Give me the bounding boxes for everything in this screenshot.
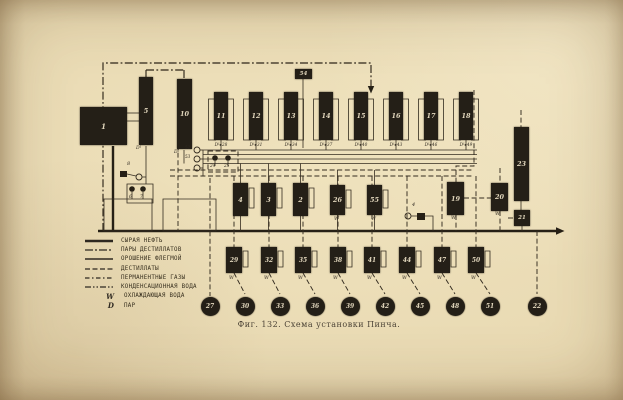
vessel-55: 55: [367, 185, 382, 215]
pipe-line: [346, 190, 351, 208]
pipe-line: [120, 171, 127, 177]
tower-drain-label: D¹▸37: [309, 144, 343, 148]
steam-mark: D¹: [174, 151, 179, 156]
device-4-label: 4: [412, 203, 415, 208]
cooling-water-mark: W: [334, 218, 339, 223]
distillation-tower: 11: [214, 92, 228, 140]
device-6-label: 6: [129, 195, 132, 199]
scanned-book-page: 1 5 10 D¹ D¹ 54 23 19 20 21 W W 4 3 2 26…: [0, 0, 623, 400]
receiver-tank: 33: [271, 297, 290, 316]
distillation-tower: 17: [424, 92, 438, 140]
furnace-number: 1: [101, 122, 106, 131]
cooling-water-mark: W: [367, 277, 372, 282]
cooling-water-mark: W: [298, 277, 303, 282]
device-symbol: [194, 156, 200, 162]
tower-drain-label: D¹▸31: [239, 144, 273, 148]
vessel-number: 23: [517, 160, 526, 168]
legend-line-sample: [84, 274, 114, 282]
device-25-label: 25: [224, 164, 229, 168]
tower-10: 10: [177, 79, 192, 149]
furnace: 1: [80, 107, 127, 145]
pipe-line: [269, 273, 280, 294]
pipe-line: [381, 251, 386, 267]
device-24-label: 24: [210, 164, 215, 168]
legend-line-icon: [84, 246, 114, 254]
cooling-water-mark: W: [333, 277, 338, 282]
receiver-tank: 51: [481, 297, 500, 316]
legend-label: ОРОШЕНИЕ ФЛЕГМОЙ: [121, 256, 182, 262]
box-19: 19: [447, 182, 464, 215]
vessel-number: 2: [298, 196, 303, 204]
condenser-box: 32: [261, 247, 277, 273]
legend-label: ПЕРМАНЕНТНЫЕ ГАЗЫ: [121, 275, 185, 281]
device-7-label: 7: [140, 195, 143, 199]
legend-line-sample: D: [84, 302, 117, 310]
vessel-2: 2: [293, 183, 308, 216]
pipe-line: [485, 251, 490, 267]
vessel-number: 3: [266, 196, 271, 204]
condenser-box: 29: [226, 247, 242, 273]
distillation-tower: 15: [354, 92, 368, 140]
pipe-line: [372, 273, 385, 294]
figure-caption: Фиг. 132. Схема установки Пинча.: [238, 320, 401, 329]
legend-label: КОНДЕНСАЦИОННАЯ ВОДА: [121, 284, 197, 290]
device-53-label: 53: [185, 155, 190, 159]
pipe-line: [309, 188, 314, 208]
legend-row: ОРОШЕНИЕ ФЛЕГМОЙ: [84, 255, 197, 264]
pipe-line: [338, 273, 350, 294]
legend-label: ДЕСТИЛЛАТЫ: [121, 266, 159, 272]
cooling-water-mark: W: [229, 277, 234, 282]
receiver-tank: 27: [201, 297, 220, 316]
legend-line-icon: [84, 237, 114, 245]
receiver-tank: 42: [376, 297, 395, 316]
tower-number: 10: [180, 110, 189, 118]
legend-row: ПЕРМАНЕНТНЫЕ ГАЗЫ: [84, 273, 197, 282]
pipe-line: [163, 199, 216, 231]
vessel-number: 21: [518, 215, 526, 221]
device-symbol: [212, 155, 218, 161]
receiver-tank: 45: [411, 297, 430, 316]
pipe-line: [556, 227, 565, 235]
cooling-water-mark: W: [471, 277, 476, 282]
vessel-number: 4: [238, 196, 243, 204]
receiver-tank: 48: [446, 297, 465, 316]
legend-row: WОХЛАЖДАЮЩАЯ ВОДА: [84, 292, 197, 301]
legend-line-sample: W: [84, 292, 117, 300]
legend: СЫРАЯ НЕФТЬПАРЫ ДЕСТИЛЛАТОВОРОШЕНИЕ ФЛЕГ…: [84, 236, 197, 310]
legend-line-icon: [84, 283, 114, 291]
pipe-line: [277, 188, 282, 208]
distillation-tower: 16: [389, 92, 403, 140]
cooling-water-mark: W: [371, 218, 376, 223]
condenser-box: 35: [295, 247, 311, 273]
legend-line-icon: [84, 265, 114, 273]
condenser-box: 38: [330, 247, 346, 273]
device-symbol: [405, 213, 411, 219]
box-21: 21: [514, 210, 530, 226]
cooling-water-mark: W: [402, 277, 407, 282]
pipe-line: [249, 188, 254, 208]
device-symbol: [129, 186, 135, 192]
vessel-number: 19: [451, 195, 460, 203]
tower-drain-label: D¹▸46: [414, 144, 448, 148]
tower-drain-label: D¹▸49: [449, 144, 483, 148]
tower-drain-label: D¹▸28: [204, 144, 238, 148]
receiver-tank: 36: [306, 297, 325, 316]
device-symbol: [136, 174, 142, 180]
tower-5: 5: [139, 77, 153, 145]
device-symbol: [225, 155, 231, 161]
receiver-tank: 30: [236, 297, 255, 316]
pipe-line: [312, 251, 317, 267]
condenser-box: 50: [468, 247, 484, 273]
pipe-line: [127, 174, 136, 176]
pipe-line: [278, 251, 283, 267]
legend-label: ПАР: [124, 303, 135, 309]
pipe-line: [476, 273, 490, 294]
legend-line-icon: [84, 255, 114, 263]
pipe-line: [243, 251, 248, 267]
distillation-tower: 18: [459, 92, 473, 140]
pipe-line: [104, 199, 152, 231]
badge-54: 54: [295, 69, 312, 79]
condenser-box: 41: [364, 247, 380, 273]
receiver-tank: 39: [341, 297, 360, 316]
tower-drain-label: D¹▸40: [344, 144, 378, 148]
tower-drain-label: D¹▸34: [274, 144, 308, 148]
cooling-water-mark: W: [495, 213, 500, 218]
pipe-line: [451, 251, 456, 267]
legend-line-sample: [84, 283, 114, 291]
tower-number: 5: [144, 107, 149, 115]
tower-drain-label: D¹▸43: [379, 144, 413, 148]
legend-row: DПАР: [84, 301, 197, 310]
distillation-tower: 14: [319, 92, 333, 140]
legend-label: СЫРАЯ НЕФТЬ: [121, 238, 163, 244]
vessel-26: 26: [330, 185, 345, 215]
box-20: 20: [491, 183, 508, 211]
vessel-3: 3: [261, 183, 276, 216]
legend-row: ДЕСТИЛЛАТЫ: [84, 264, 197, 273]
legend-line-icon: [84, 274, 114, 282]
condenser-box: 47: [434, 247, 450, 273]
legend-row: КОНДЕНСАЦИОННАЯ ВОДА: [84, 282, 197, 291]
legend-label: ПАРЫ ДЕСТИЛЛАТОВ: [121, 247, 182, 253]
pipe-line: [234, 273, 245, 294]
distillation-tower: 13: [284, 92, 298, 140]
device-8-label: 8: [127, 162, 130, 167]
pipe-line: [416, 251, 421, 267]
badge-number: 54: [300, 71, 308, 77]
legend-line-sample: [84, 246, 114, 254]
pipe-line: [347, 251, 352, 267]
diagram-pipework: [0, 0, 623, 400]
distillation-tower: 12: [249, 92, 263, 140]
pipe-line: [407, 273, 420, 294]
vessel-number: 55: [370, 196, 379, 204]
legend-line-sample: [84, 265, 114, 273]
legend-label: ОХЛАЖДАЮЩАЯ ВОДА: [124, 293, 185, 299]
pipe-line: [417, 213, 425, 220]
pipe-line: [383, 190, 388, 208]
condenser-box: 44: [399, 247, 415, 273]
vessel-4: 4: [233, 183, 248, 216]
legend-row: СЫРАЯ НЕФТЬ: [84, 236, 197, 245]
device-symbol: [194, 147, 200, 153]
device-52-label: 52: [185, 146, 190, 150]
legend-line-sample: [84, 237, 114, 245]
receiver-tank: 22: [528, 297, 547, 316]
legend-line-sample: [84, 255, 114, 263]
column-23: 23: [514, 127, 529, 201]
vessel-number: 26: [333, 196, 342, 204]
steam-mark: D¹: [136, 147, 141, 152]
cooling-water-mark: W: [451, 217, 456, 222]
device-symbol: [140, 186, 146, 192]
pipe-line: [442, 273, 455, 294]
pipe-line: [303, 273, 315, 294]
legend-row: ПАРЫ ДЕСТИЛЛАТОВ: [84, 245, 197, 254]
cooling-water-mark: W: [437, 277, 442, 282]
cooling-water-mark: W: [264, 277, 269, 282]
vessel-number: 20: [495, 193, 504, 201]
pipe-line: [425, 216, 433, 231]
